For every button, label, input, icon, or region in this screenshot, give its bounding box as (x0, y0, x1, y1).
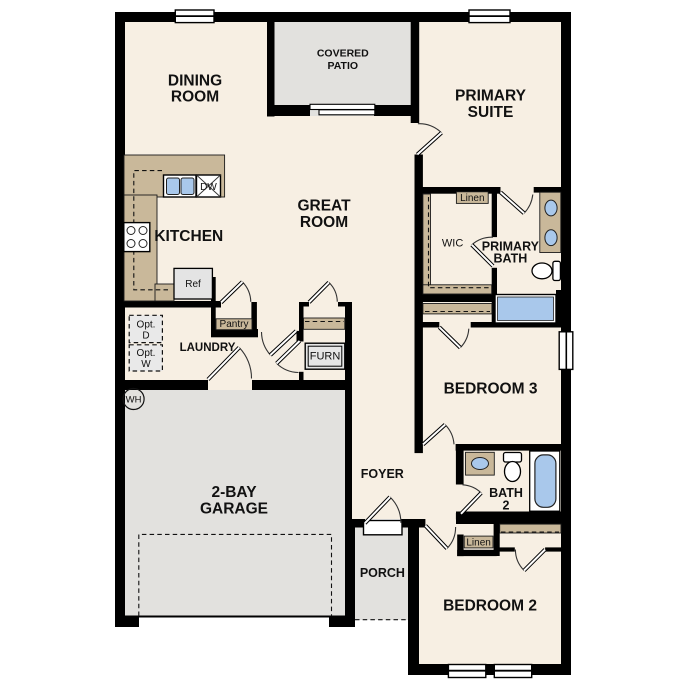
svg-text:GARAGE: GARAGE (200, 501, 268, 518)
svg-text:W: W (141, 359, 151, 370)
svg-text:DW: DW (200, 182, 217, 193)
svg-text:ROOM: ROOM (171, 89, 219, 106)
svg-text:Ref: Ref (185, 279, 201, 290)
svg-text:2: 2 (503, 499, 510, 513)
svg-text:BEDROOM 2: BEDROOM 2 (443, 598, 537, 615)
svg-text:SUITE: SUITE (468, 104, 514, 121)
svg-text:D: D (142, 331, 149, 342)
svg-text:GREAT: GREAT (297, 198, 351, 215)
svg-text:Opt.: Opt. (137, 348, 156, 359)
svg-text:FOYER: FOYER (361, 467, 404, 481)
svg-text:DINING: DINING (168, 72, 222, 89)
svg-text:WH: WH (126, 395, 142, 406)
svg-text:2-BAY: 2-BAY (211, 484, 257, 501)
svg-text:PRIMARY: PRIMARY (455, 87, 527, 104)
svg-text:FURN: FURN (310, 351, 341, 363)
svg-text:PORCH: PORCH (360, 566, 405, 580)
svg-text:PATIO: PATIO (328, 60, 359, 72)
svg-text:Opt.: Opt. (137, 320, 156, 331)
svg-text:BEDROOM 3: BEDROOM 3 (444, 381, 538, 398)
svg-text:WIC: WIC (442, 237, 463, 249)
svg-text:BATH: BATH (494, 252, 528, 266)
svg-text:Pantry: Pantry (220, 319, 249, 330)
svg-text:Linen: Linen (466, 538, 490, 549)
svg-text:ROOM: ROOM (300, 214, 348, 231)
svg-text:COVERED: COVERED (317, 48, 369, 60)
svg-text:LAUNDRY: LAUNDRY (180, 342, 236, 354)
svg-text:Linen: Linen (460, 193, 484, 204)
svg-text:KITCHEN: KITCHEN (154, 228, 223, 245)
